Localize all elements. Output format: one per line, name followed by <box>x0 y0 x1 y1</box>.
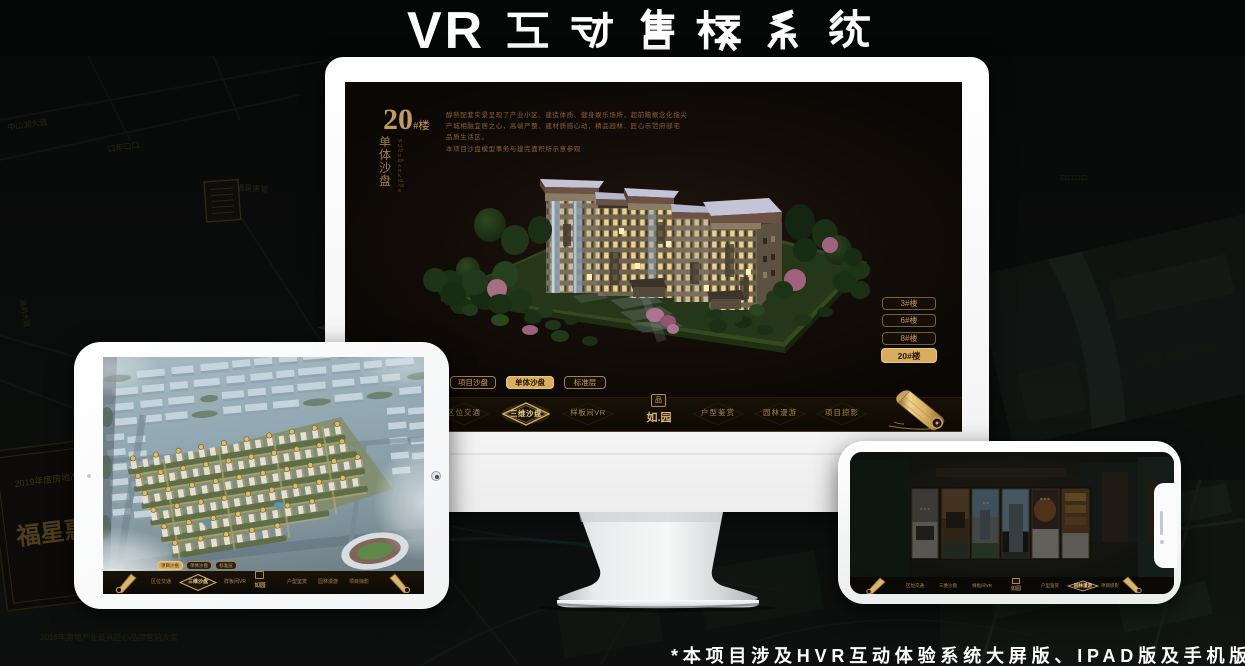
svg-text:2019年房地产业最具匠心品牌营销大奖: 2019年房地产业最具匠心品牌营销大奖 <box>40 632 178 642</box>
svg-text:口口口口: 口口口口 <box>1060 174 1088 182</box>
svg-text:VR: VR <box>407 2 485 58</box>
